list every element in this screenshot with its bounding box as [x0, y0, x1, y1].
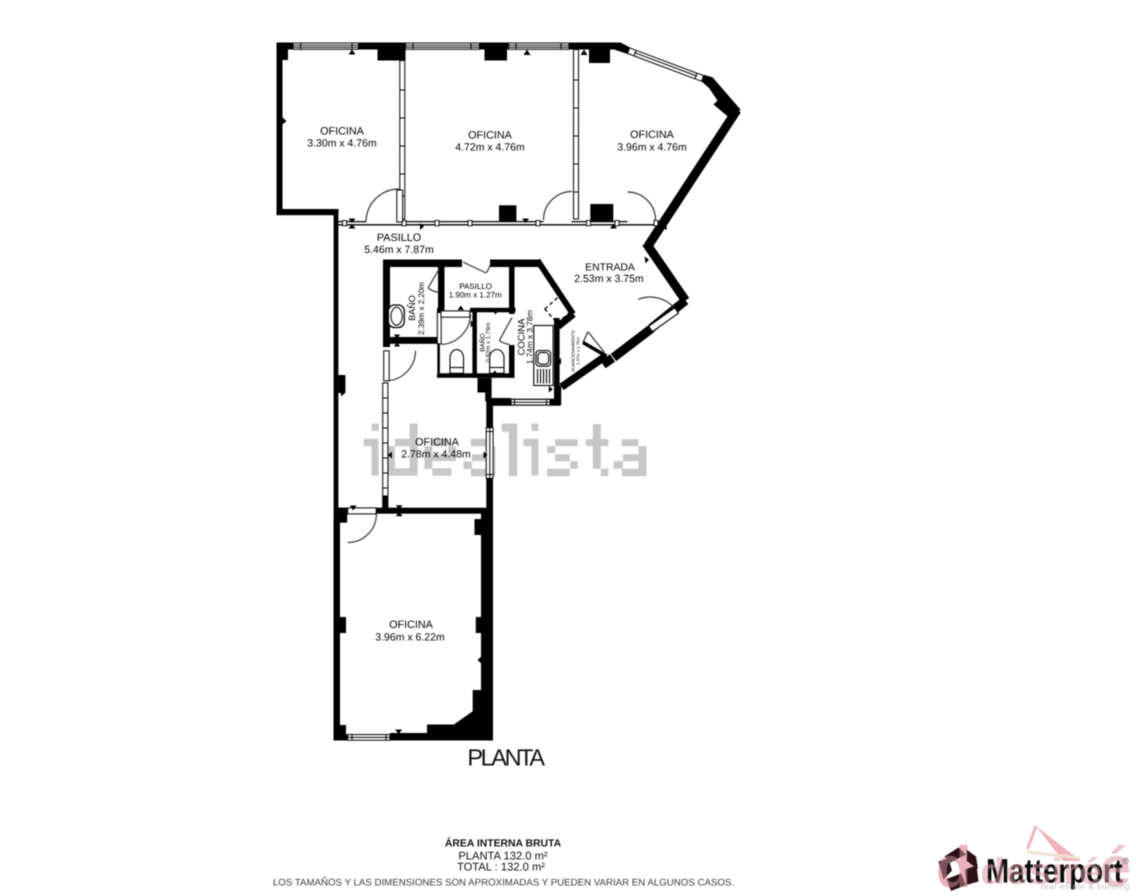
svg-text:OFICINA: OFICINA: [630, 129, 675, 141]
svg-text:0.92m x 1.79m: 0.92m x 1.79m: [485, 323, 492, 363]
svg-text:PASILLO: PASILLO: [377, 232, 421, 244]
svg-text:OFICINA: OFICINA: [320, 125, 365, 137]
svg-text:OFICINA: OFICINA: [415, 437, 460, 449]
svg-text:2.78m x 4.48m: 2.78m x 4.48m: [401, 449, 471, 461]
svg-text:ENTRADA: ENTRADA: [585, 262, 635, 273]
svg-text:1.90m x 1.27m: 1.90m x 1.27m: [449, 290, 502, 299]
svg-text:TOTAL : 132.0 m²: TOTAL : 132.0 m²: [457, 861, 545, 873]
svg-text:PLANTA: PLANTA: [467, 745, 545, 771]
svg-text:3.96m x 6.22m: 3.96m x 6.22m: [375, 631, 445, 643]
svg-text:4.72m x 4.76m: 4.72m x 4.76m: [455, 142, 525, 154]
svg-text:d: d: [936, 835, 971, 896]
svg-text:5.46m x 7.87m: 5.46m x 7.87m: [364, 244, 434, 256]
svg-text:1.74m x 3.78m: 1.74m x 3.78m: [526, 310, 535, 364]
svg-text:2.53m x 3.75m: 2.53m x 3.75m: [574, 273, 644, 285]
svg-text:OFICINA: OFICINA: [468, 130, 513, 142]
svg-text:ÁREA INTERNA BRUTA: ÁREA INTERNA BRUTA: [445, 837, 562, 850]
svg-text:BAÑO: BAÑO: [407, 295, 417, 321]
svg-text:real estate & building: real estate & building: [1041, 882, 1130, 891]
svg-text:3.96m x 4.76m: 3.96m x 4.76m: [617, 141, 687, 153]
svg-text:LOS TAMAÑOS Y LAS DIMENSIONES: LOS TAMAÑOS Y LAS DIMENSIONES SON APROXI…: [273, 876, 734, 888]
svg-text:1.37m x 1.75m: 1.37m x 1.75m: [576, 337, 581, 365]
svg-text:3.30m x 4.76m: 3.30m x 4.76m: [307, 138, 377, 150]
svg-text:2.39m x 2.20m: 2.39m x 2.20m: [417, 282, 426, 335]
svg-text:OFICINA: OFICINA: [389, 619, 434, 631]
